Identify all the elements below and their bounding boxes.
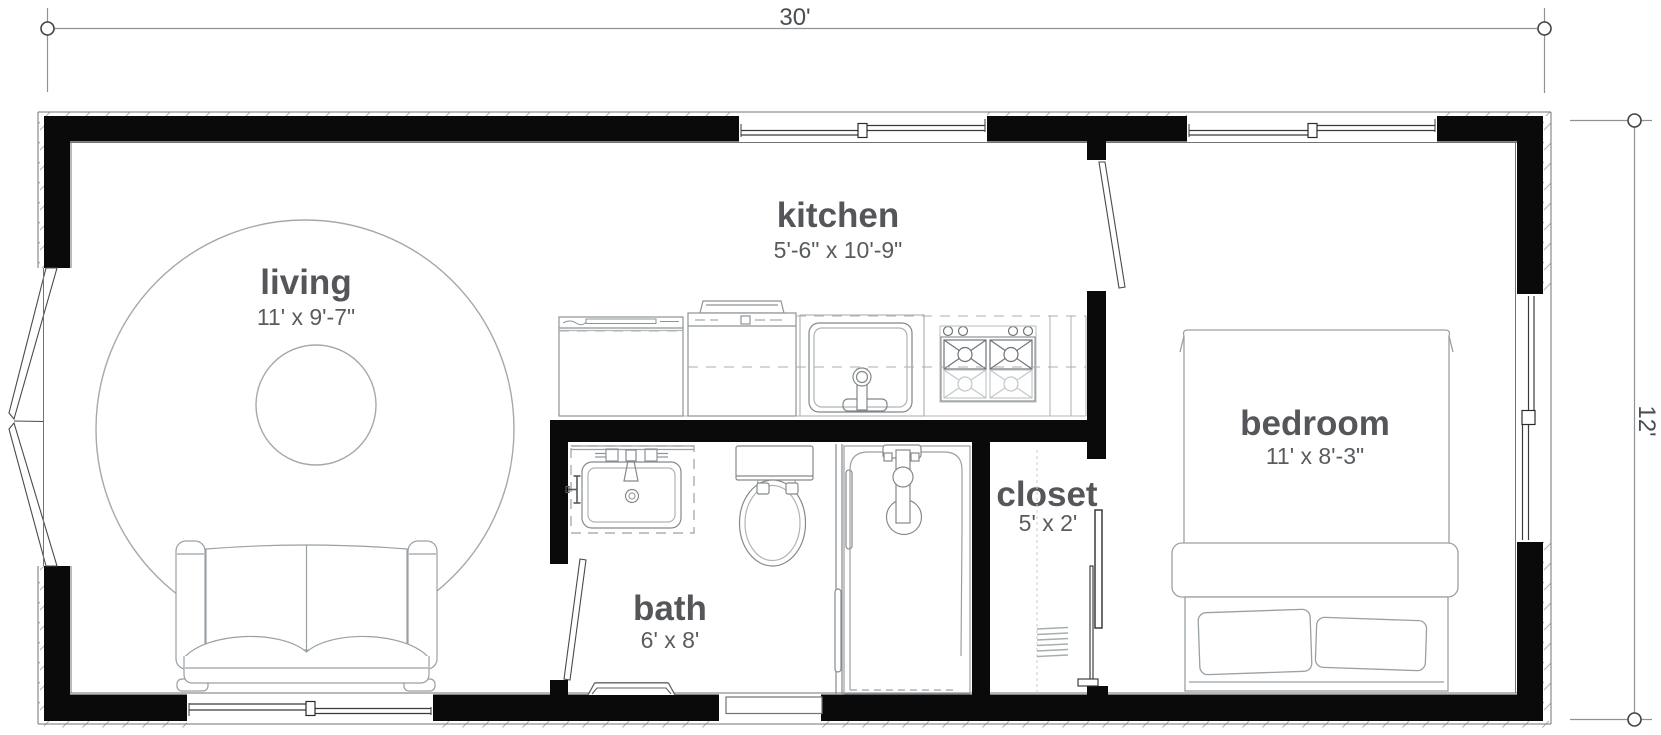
svg-text:12': 12' bbox=[1633, 405, 1660, 436]
svg-text:11' x 9'-7": 11' x 9'-7" bbox=[257, 304, 355, 330]
svg-text:bath: bath bbox=[633, 589, 707, 628]
svg-text:5'-6" x 10'-9": 5'-6" x 10'-9" bbox=[774, 237, 903, 263]
svg-text:kitchen: kitchen bbox=[777, 196, 900, 235]
svg-text:closet: closet bbox=[996, 475, 1097, 514]
svg-text:11' x 8'-3": 11' x 8'-3" bbox=[1266, 443, 1364, 469]
svg-text:6' x 8': 6' x 8' bbox=[641, 627, 700, 653]
svg-text:30': 30' bbox=[779, 4, 810, 31]
svg-text:living: living bbox=[260, 263, 351, 302]
svg-text:bedroom: bedroom bbox=[1240, 404, 1390, 443]
svg-text:5' x 2': 5' x 2' bbox=[1019, 510, 1078, 536]
